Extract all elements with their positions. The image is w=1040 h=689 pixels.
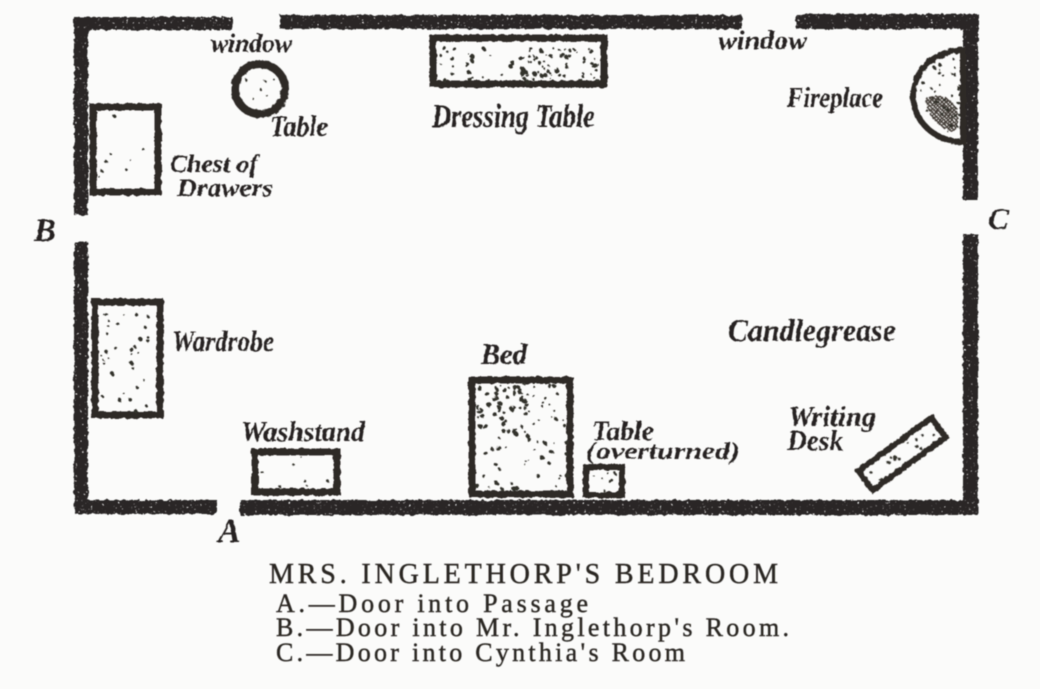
svg-text:Washstand: Washstand [241, 417, 366, 448]
svg-text:Wardrobe: Wardrobe [172, 325, 274, 358]
svg-text:window: window [718, 26, 808, 55]
svg-text:Drawers: Drawers [176, 175, 273, 202]
svg-text:C: C [988, 201, 1009, 236]
svg-text:Bed: Bed [480, 338, 528, 371]
svg-text:Chest of: Chest of [170, 151, 261, 178]
svg-text:Fireplace: Fireplace [786, 82, 883, 114]
svg-text:window: window [211, 29, 293, 58]
svg-text:Candlegrease: Candlegrease [728, 312, 896, 348]
svg-text:Dressing Table: Dressing Table [431, 99, 595, 135]
svg-text:C.—Door into Cynthia's Room: C.—Door into Cynthia's Room [276, 638, 685, 667]
svg-text:(overturned): (overturned) [586, 439, 740, 465]
svg-text:Desk: Desk [786, 426, 843, 457]
svg-text:B: B [33, 213, 56, 249]
svg-text:A: A [216, 513, 241, 550]
svg-text:Table: Table [270, 110, 328, 143]
